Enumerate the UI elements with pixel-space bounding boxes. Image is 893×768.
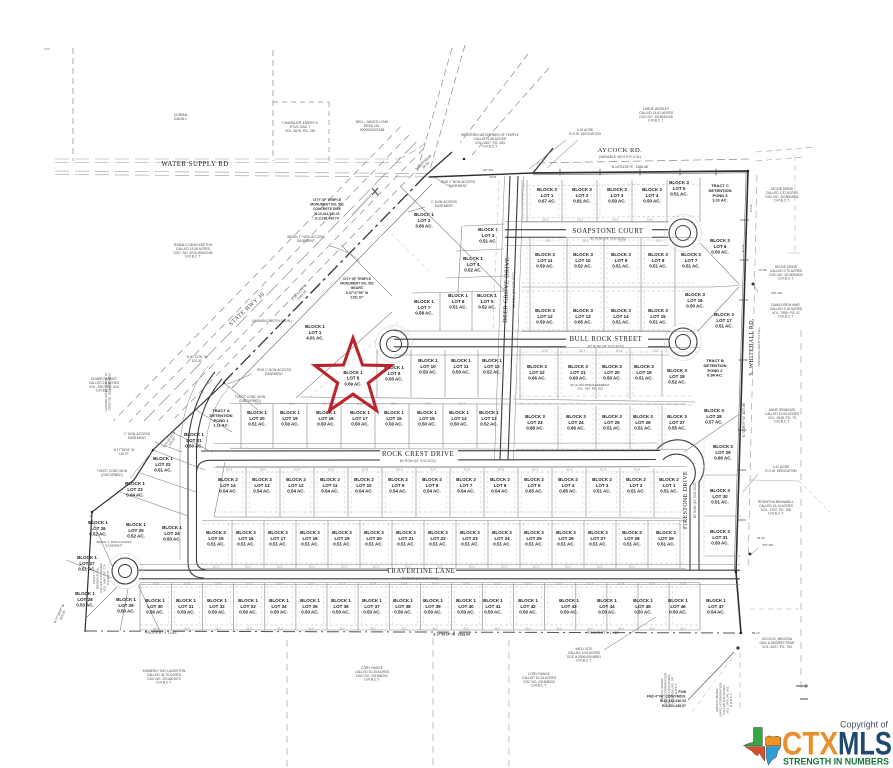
svg-text:1.01 AC.: 1.01 AC. bbox=[712, 198, 728, 203]
svg-text:BLOCK 1: BLOCK 1 bbox=[153, 456, 173, 461]
svg-text:0.50 AC.: 0.50 AC. bbox=[450, 422, 468, 427]
svg-text:0.88 AC.: 0.88 AC. bbox=[526, 426, 544, 431]
svg-text:LOT 20: LOT 20 bbox=[249, 416, 265, 421]
svg-text:BLOCK 3: BLOCK 3 bbox=[602, 414, 622, 419]
svg-text:DAVID L.: DAVID L. bbox=[174, 117, 188, 121]
svg-text:0.54 AC.: 0.54 AC. bbox=[491, 489, 509, 494]
svg-text:0.51 AC.: 0.51 AC. bbox=[248, 422, 266, 427]
svg-text:BLOCK 2: BLOCK 2 bbox=[252, 477, 272, 482]
svg-text:0.90 AC.: 0.90 AC. bbox=[707, 373, 723, 378]
svg-text:110.0: 110.0 bbox=[629, 565, 636, 569]
svg-text:0.50 AC.: 0.50 AC. bbox=[385, 377, 403, 382]
svg-text:LOT 12: LOT 12 bbox=[288, 483, 304, 488]
svg-text:LOT 5: LOT 5 bbox=[481, 299, 494, 304]
svg-text:0.50 AC.: 0.50 AC. bbox=[484, 610, 502, 615]
svg-text:LOT 5: LOT 5 bbox=[528, 483, 541, 488]
svg-text:BLOCK 2: BLOCK 2 bbox=[206, 530, 226, 535]
svg-text:LOT 14: LOT 14 bbox=[220, 483, 236, 488]
svg-text:BLOCK 2: BLOCK 2 bbox=[588, 530, 608, 535]
svg-text:0.51 AC.: 0.51 AC. bbox=[623, 542, 641, 547]
svg-text:0.54 AC.: 0.54 AC. bbox=[423, 489, 441, 494]
svg-text:BEARS: BEARS bbox=[351, 286, 364, 290]
svg-text:115.0: 115.0 bbox=[289, 402, 296, 406]
svg-text:BLOCK 2: BLOCK 2 bbox=[490, 477, 510, 482]
svg-text:0.53 AC.: 0.53 AC. bbox=[76, 603, 94, 608]
svg-text:BLOCK 1: BLOCK 1 bbox=[300, 598, 320, 603]
svg-text:60' ROW (24" EOC-EOC): 60' ROW (24" EOC-EOC) bbox=[402, 577, 438, 581]
svg-text:130.1: 130.1 bbox=[656, 239, 663, 243]
svg-text:BLOCK 1: BLOCK 1 bbox=[280, 410, 300, 415]
svg-text:LOT 11: LOT 11 bbox=[453, 364, 469, 369]
svg-text:130.1: 130.1 bbox=[619, 239, 626, 243]
svg-text:0.65 AC.: 0.65 AC. bbox=[525, 489, 543, 494]
svg-text:0.69 AC.: 0.69 AC. bbox=[344, 381, 361, 386]
svg-text:125.0: 125.0 bbox=[542, 218, 549, 222]
svg-text:(VARIABLE WIDTH R.O.W.): (VARIABLE WIDTH R.O.W.) bbox=[252, 319, 292, 323]
svg-text:0.50 AC.: 0.50 AC. bbox=[239, 610, 257, 615]
svg-text:D.R.B.C.T.: D.R.B.C.T. bbox=[106, 571, 110, 585]
svg-text:0.51 AC.: 0.51 AC. bbox=[603, 426, 621, 431]
svg-text:0.51 AC.: 0.51 AC. bbox=[660, 489, 678, 494]
svg-text:110.0: 110.0 bbox=[533, 565, 540, 569]
svg-text:LOT 22: LOT 22 bbox=[529, 370, 545, 375]
svg-text:0.65 AC.: 0.65 AC. bbox=[574, 320, 592, 325]
svg-text:BLOCK 2: BLOCK 2 bbox=[626, 477, 646, 482]
svg-text:BLOCK 1: BLOCK 1 bbox=[518, 598, 538, 603]
svg-text:LOT 26: LOT 26 bbox=[558, 536, 574, 541]
svg-text:BLOCK 2: BLOCK 2 bbox=[422, 477, 442, 482]
svg-text:LOT 9: LOT 9 bbox=[388, 371, 401, 376]
svg-text:LOT 19: LOT 19 bbox=[282, 416, 298, 421]
svg-text:LOT 8: LOT 8 bbox=[347, 376, 360, 381]
svg-text:110.0: 110.0 bbox=[501, 565, 508, 569]
svg-text:115.8: 115.8 bbox=[464, 468, 471, 472]
svg-text:115.0: 115.0 bbox=[255, 402, 262, 406]
svg-text:115.8: 115.8 bbox=[339, 582, 346, 586]
svg-text:115.8: 115.8 bbox=[401, 582, 408, 586]
svg-text:110.0: 110.0 bbox=[373, 565, 380, 569]
svg-text:BLOCK 1: BLOCK 1 bbox=[706, 598, 726, 603]
svg-text:BLOCK 1: BLOCK 1 bbox=[414, 299, 434, 304]
svg-text:LOT 7: LOT 7 bbox=[418, 305, 431, 310]
svg-text:0.50 AC.: 0.50 AC. bbox=[419, 370, 437, 375]
svg-text:0.51 AC.: 0.51 AC. bbox=[525, 542, 543, 547]
svg-text:LOT 7: LOT 7 bbox=[460, 483, 473, 488]
svg-text:4.01 AC.: 4.01 AC. bbox=[306, 336, 324, 341]
svg-text:LOT 14: LOT 14 bbox=[451, 416, 467, 421]
svg-text:BLOCK 2: BLOCK 2 bbox=[558, 477, 578, 482]
svg-text:0.65 AC.: 0.65 AC. bbox=[559, 489, 577, 494]
svg-text:BLOCK 3: BLOCK 3 bbox=[704, 408, 724, 413]
svg-text:BLOCK 3: BLOCK 3 bbox=[669, 180, 689, 185]
svg-text:BLOCK 1: BLOCK 1 bbox=[477, 293, 497, 298]
svg-text:115.8: 115.8 bbox=[396, 468, 403, 472]
svg-text:0.50 AC.: 0.50 AC. bbox=[185, 444, 203, 449]
svg-text:BLOCK 3: BLOCK 3 bbox=[710, 529, 730, 534]
svg-text:0.50 AC.: 0.50 AC. bbox=[301, 610, 319, 615]
svg-text:110.0: 110.0 bbox=[469, 565, 476, 569]
svg-text:LOT 20: LOT 20 bbox=[366, 536, 382, 541]
svg-text:BLOCK 1: BLOCK 1 bbox=[343, 370, 363, 375]
svg-text:115.8: 115.8 bbox=[370, 582, 377, 586]
svg-text:(DISTURBED): (DISTURBED) bbox=[101, 473, 122, 477]
svg-text:LOT 1: LOT 1 bbox=[309, 330, 322, 335]
svg-text:0.50 AC.: 0.50 AC. bbox=[332, 610, 350, 615]
svg-text:BLOCK 1: BLOCK 1 bbox=[207, 598, 227, 603]
svg-text:BLOCK 1: BLOCK 1 bbox=[247, 410, 267, 415]
svg-text:STRENGTH IN NUMBERS: STRENGTH IN NUMBERS bbox=[783, 757, 889, 767]
svg-text:BLOCK 1: BLOCK 1 bbox=[478, 227, 498, 232]
svg-text:LOT 32: LOT 32 bbox=[209, 604, 225, 609]
svg-text:0.60 AC.: 0.60 AC. bbox=[569, 376, 587, 381]
svg-text:0.50 AC.: 0.50 AC. bbox=[270, 610, 288, 615]
svg-text:BLOCK 3: BLOCK 3 bbox=[634, 364, 654, 369]
svg-text:BLOCK 3: BLOCK 3 bbox=[566, 414, 586, 419]
svg-text:0.50 AC.: 0.50 AC. bbox=[608, 199, 626, 204]
svg-text:BLOCK 1: BLOCK 1 bbox=[418, 358, 438, 363]
svg-text:55.0: 55.0 bbox=[618, 627, 624, 631]
svg-text:LOT 16: LOT 16 bbox=[386, 416, 402, 421]
svg-text:LOT 2: LOT 2 bbox=[418, 218, 431, 223]
svg-text:BLOCK 3: BLOCK 3 bbox=[710, 238, 730, 243]
svg-text:EASEMENT: EASEMENT bbox=[265, 372, 283, 376]
svg-text:0.54 AC.: 0.54 AC. bbox=[219, 489, 237, 494]
svg-text:115.0: 115.0 bbox=[357, 402, 364, 406]
svg-text:LOT 3: LOT 3 bbox=[596, 483, 609, 488]
svg-text:115.8: 115.8 bbox=[277, 582, 284, 586]
svg-text:BLOCK 1: BLOCK 1 bbox=[145, 598, 165, 603]
svg-text:55.0: 55.0 bbox=[308, 627, 314, 631]
svg-text:S 67°37'55" W: S 67°37'55" W bbox=[346, 291, 369, 295]
svg-text:55.0: 55.0 bbox=[463, 627, 469, 631]
svg-text:LOT 28: LOT 28 bbox=[77, 597, 93, 602]
svg-text:115.8: 115.8 bbox=[587, 582, 594, 586]
svg-text:BLOCK 1: BLOCK 1 bbox=[125, 481, 145, 486]
svg-text:LOT 16: LOT 16 bbox=[687, 298, 703, 303]
svg-text:D.R.B.C.T.: D.R.B.C.T. bbox=[778, 315, 794, 319]
svg-text:BLOCK 3: BLOCK 3 bbox=[667, 414, 687, 419]
svg-text:0.50 AC.: 0.50 AC. bbox=[163, 537, 181, 542]
svg-text:BLOCK 2: BLOCK 2 bbox=[524, 477, 544, 482]
svg-text:BLOCK 1: BLOCK 1 bbox=[456, 598, 476, 603]
svg-text:LOT 25: LOT 25 bbox=[526, 536, 542, 541]
svg-text:LOT 18: LOT 18 bbox=[669, 374, 685, 379]
svg-text:0.52 AC.: 0.52 AC. bbox=[478, 305, 496, 310]
svg-text:0.51 AC.: 0.51 AC. bbox=[207, 542, 225, 547]
svg-text:37.06’: 37.06’ bbox=[759, 268, 768, 272]
svg-text:0.51 AC.: 0.51 AC. bbox=[682, 264, 700, 269]
svg-text:D.R.B.C.T.: D.R.B.C.T. bbox=[774, 420, 790, 424]
svg-text:125.0: 125.0 bbox=[577, 218, 584, 222]
svg-text:LOT 5: LOT 5 bbox=[673, 186, 686, 191]
svg-text:BLOCK 1: BLOCK 1 bbox=[331, 598, 351, 603]
svg-text:LOT 13: LOT 13 bbox=[575, 314, 591, 319]
svg-text:LOT 22: LOT 22 bbox=[155, 462, 171, 467]
svg-text:LOT 30: LOT 30 bbox=[712, 494, 728, 499]
svg-text:125.0: 125.0 bbox=[612, 218, 619, 222]
svg-text:0.51 AC.: 0.51 AC. bbox=[78, 567, 96, 572]
svg-text:D.R.B.C.T.: D.R.B.C.T. bbox=[531, 684, 547, 688]
svg-text:LOT 44: LOT 44 bbox=[599, 604, 615, 609]
svg-text:115.8: 115.8 bbox=[294, 468, 301, 472]
svg-text:PROPERTY LINE: PROPERTY LINE bbox=[145, 631, 178, 635]
svg-text:0.52 AC.: 0.52 AC. bbox=[89, 532, 107, 537]
svg-text:55.0: 55.0 bbox=[184, 627, 190, 631]
svg-text:LOT 19: LOT 19 bbox=[334, 536, 350, 541]
svg-text:55.0: 55.0 bbox=[556, 627, 562, 631]
svg-text:BLOCK 2: BLOCK 2 bbox=[524, 530, 544, 535]
svg-text:110.0: 110.0 bbox=[341, 565, 348, 569]
svg-text:0.51 AC.: 0.51 AC. bbox=[627, 489, 645, 494]
svg-text:BLOCK 3: BLOCK 3 bbox=[572, 187, 592, 192]
svg-text:LOT 46: LOT 46 bbox=[670, 604, 686, 609]
svg-text:LOT 16: LOT 16 bbox=[238, 536, 254, 541]
svg-text:VOL. 6127, PG. 703: VOL. 6127, PG. 703 bbox=[762, 645, 792, 649]
svg-text:LOT 47: LOT 47 bbox=[708, 604, 724, 609]
svg-text:D.R.B.C.T.: D.R.B.C.T. bbox=[185, 255, 201, 259]
svg-text:45.43’: 45.43’ bbox=[757, 536, 766, 540]
svg-text:D.R.B.C.T.: D.R.B.C.T. bbox=[768, 512, 784, 516]
svg-text:0.51 AC.: 0.51 AC. bbox=[493, 542, 511, 547]
svg-text:55.0: 55.0 bbox=[494, 627, 500, 631]
svg-text:LOT 38: LOT 38 bbox=[395, 604, 411, 609]
svg-text:BLOCK 2: BLOCK 2 bbox=[428, 530, 448, 535]
svg-text:0.50 AC.: 0.50 AC. bbox=[208, 610, 226, 615]
svg-text:LOT 40: LOT 40 bbox=[458, 604, 474, 609]
svg-text:POB: POB bbox=[678, 690, 686, 694]
svg-text:0.50 AC.: 0.50 AC. bbox=[711, 250, 729, 255]
svg-text:D.R.B.C.T.: D.R.B.C.T. bbox=[778, 277, 794, 281]
svg-text:LOT 25: LOT 25 bbox=[604, 420, 620, 425]
svg-text:EASEMENT: EASEMENT bbox=[435, 204, 453, 208]
svg-text:0.51 AC.: 0.51 AC. bbox=[333, 542, 351, 547]
svg-text:0.51 AC.: 0.51 AC. bbox=[154, 468, 172, 473]
svg-text:BLOCK 2: BLOCK 2 bbox=[236, 530, 256, 535]
svg-text:D.R.B.C.T.: D.R.B.C.T. bbox=[364, 678, 380, 682]
svg-text:130.1: 130.1 bbox=[582, 239, 589, 243]
svg-text:LOT 11: LOT 11 bbox=[537, 258, 553, 263]
svg-text:LOT 43: LOT 43 bbox=[561, 604, 577, 609]
svg-text:LOT 30: LOT 30 bbox=[147, 604, 163, 609]
svg-text:55.0: 55.0 bbox=[587, 627, 593, 631]
svg-text:D.R.B.C.T.: D.R.B.C.T. bbox=[576, 659, 592, 663]
svg-text:0.50 AC.: 0.50 AC. bbox=[146, 610, 164, 615]
svg-text:55.0: 55.0 bbox=[246, 627, 252, 631]
svg-text:BLOCK 1: BLOCK 1 bbox=[126, 522, 146, 527]
svg-text:110.0: 110.0 bbox=[277, 565, 284, 569]
svg-text:0.50 AC.: 0.50 AC. bbox=[598, 610, 616, 615]
svg-text:BLOCK 3: BLOCK 3 bbox=[710, 488, 730, 493]
svg-text:110.0: 110.0 bbox=[565, 565, 572, 569]
svg-text:0.54 AC.: 0.54 AC. bbox=[253, 489, 271, 494]
svg-text:SOAPSTONE COURT: SOAPSTONE COURT bbox=[573, 228, 644, 235]
svg-text:BLOCK 1: BLOCK 1 bbox=[463, 256, 483, 261]
svg-text:LOT 6: LOT 6 bbox=[714, 244, 727, 249]
svg-text:0.51 AC.: 0.51 AC. bbox=[429, 542, 447, 547]
svg-text:BLOCK 1: BLOCK 1 bbox=[238, 598, 258, 603]
svg-text:LOT 3: LOT 3 bbox=[611, 193, 624, 198]
svg-text:LOT 29: LOT 29 bbox=[118, 603, 134, 608]
svg-text:0.51 AC.: 0.51 AC. bbox=[237, 542, 255, 547]
svg-text:LOT 41: LOT 41 bbox=[485, 604, 501, 609]
svg-text:BLOCK 1: BLOCK 1 bbox=[393, 598, 413, 603]
svg-text:0.50 AC.: 0.50 AC. bbox=[363, 610, 381, 615]
svg-text:115.8: 115.8 bbox=[579, 349, 586, 353]
svg-text:BLOCK 2: BLOCK 2 bbox=[592, 477, 612, 482]
svg-text:115.8: 115.8 bbox=[260, 468, 267, 472]
svg-text:BLOCK 3: BLOCK 3 bbox=[535, 308, 555, 313]
svg-text:BLOCK 1: BLOCK 1 bbox=[162, 525, 182, 530]
svg-text:R.O.W.: R.O.W. bbox=[749, 204, 753, 213]
svg-text:LOT 24: LOT 24 bbox=[494, 536, 510, 541]
svg-text:S 17°58'14" W 2518.64’: S 17°58'14" W 2518.64’ bbox=[433, 633, 470, 637]
svg-text:BLOCK 1: BLOCK 1 bbox=[176, 598, 196, 603]
svg-text:55.0: 55.0 bbox=[277, 627, 283, 631]
svg-text:N 14°24'23" E 1166.46’: N 14°24'23" E 1166.46’ bbox=[612, 165, 649, 169]
svg-text:0.51 AC.: 0.51 AC. bbox=[612, 320, 630, 325]
svg-text:LOT 21: LOT 21 bbox=[398, 536, 414, 541]
svg-text:EASEMENT: EASEMENT bbox=[105, 544, 122, 548]
svg-text:BLOCK 2: BLOCK 2 bbox=[492, 530, 512, 535]
svg-text:0.52 AC.: 0.52 AC. bbox=[127, 534, 145, 539]
svg-text:48.89’: 48.89’ bbox=[489, 175, 497, 179]
svg-text:55.0: 55.0 bbox=[339, 627, 345, 631]
svg-text:0.51 AC.: 0.51 AC. bbox=[397, 542, 415, 547]
svg-text:115.8: 115.8 bbox=[498, 468, 505, 472]
svg-text:BLOCK 1: BLOCK 1 bbox=[88, 520, 108, 525]
svg-text:LOT 27: LOT 27 bbox=[669, 420, 685, 425]
svg-text:R.O.W.: R.O.W. bbox=[741, 244, 745, 253]
svg-text:LOT 2: LOT 2 bbox=[630, 483, 643, 488]
svg-text:PROPERTY LINE: PROPERTY LINE bbox=[587, 631, 620, 635]
svg-text:LOT 11: LOT 11 bbox=[322, 483, 338, 488]
svg-text:0.50 AC.: 0.50 AC. bbox=[418, 422, 436, 427]
svg-text:115.0: 115.0 bbox=[323, 402, 330, 406]
svg-text:LOT 3: LOT 3 bbox=[482, 233, 495, 238]
svg-text:LOT 6: LOT 6 bbox=[494, 483, 507, 488]
svg-text:115.8: 115.8 bbox=[226, 468, 233, 472]
svg-text:0.80 AC.: 0.80 AC. bbox=[714, 456, 732, 461]
svg-text:D.R.B.C.T.: D.R.B.C.T. bbox=[774, 199, 790, 203]
svg-text:LOT 15: LOT 15 bbox=[650, 314, 666, 319]
svg-text:BLOCK 1: BLOCK 1 bbox=[414, 212, 434, 217]
svg-text:AYCOCK RD.: AYCOCK RD. bbox=[598, 147, 643, 154]
svg-text:115.8: 115.8 bbox=[542, 349, 549, 353]
svg-text:LOT 15: LOT 15 bbox=[419, 416, 435, 421]
svg-text:LOT 6: LOT 6 bbox=[452, 299, 465, 304]
svg-text:BLOCK 3: BLOCK 3 bbox=[633, 414, 653, 419]
svg-text:0.51 AC.: 0.51 AC. bbox=[269, 542, 287, 547]
svg-text:BLOCK 1: BLOCK 1 bbox=[384, 410, 404, 415]
svg-text:55.0: 55.0 bbox=[680, 627, 686, 631]
svg-text:LOT 17: LOT 17 bbox=[716, 318, 732, 323]
svg-text:0.66 AC.: 0.66 AC. bbox=[567, 426, 585, 431]
svg-text:0.51 AC.: 0.51 AC. bbox=[589, 542, 607, 547]
svg-text:LOT 24: LOT 24 bbox=[164, 531, 180, 536]
svg-text:0.50 AC.: 0.50 AC. bbox=[317, 422, 335, 427]
svg-text:R.O.W. DEDICATION: R.O.W. DEDICATION bbox=[765, 469, 797, 473]
svg-text:BLOCK 2: BLOCK 2 bbox=[556, 530, 576, 535]
svg-text:2009000022188: 2009000022188 bbox=[360, 128, 385, 132]
svg-text:BLOCK 1: BLOCK 1 bbox=[75, 591, 95, 596]
svg-text:BLOCK 1: BLOCK 1 bbox=[559, 598, 579, 603]
svg-text:BULL ROCK STREET: BULL ROCK STREET bbox=[570, 336, 643, 343]
svg-text:LOT 42: LOT 42 bbox=[520, 604, 536, 609]
svg-text:0.50 AC.: 0.50 AC. bbox=[634, 610, 652, 615]
svg-text:BLOCK 2: BLOCK 2 bbox=[364, 530, 384, 535]
svg-text:0.51 AC.: 0.51 AC. bbox=[612, 264, 630, 269]
svg-text:BLOCK 1: BLOCK 1 bbox=[423, 598, 443, 603]
svg-text:DEED NO. 2006000029098: DEED NO. 2006000029098 bbox=[108, 373, 112, 410]
svg-text:115.0: 115.0 bbox=[459, 402, 466, 406]
svg-text:0.67 AC.: 0.67 AC. bbox=[538, 199, 556, 204]
svg-text:BLOCK 1: BLOCK 1 bbox=[449, 410, 469, 415]
svg-text:0.51 AC.: 0.51 AC. bbox=[593, 489, 611, 494]
svg-text:BLOCK 1: BLOCK 1 bbox=[269, 598, 289, 603]
svg-text:LOT 28: LOT 28 bbox=[624, 536, 640, 541]
svg-text:LOT 2: LOT 2 bbox=[576, 193, 589, 198]
svg-text:LOT 18: LOT 18 bbox=[318, 416, 334, 421]
svg-text:60' ROW (24" EOC-EOC): 60' ROW (24" EOC-EOC) bbox=[512, 272, 516, 308]
svg-text:BLOCK 2: BLOCK 2 bbox=[354, 477, 374, 482]
svg-text:LOT 4: LOT 4 bbox=[467, 262, 480, 267]
svg-text:BLOCK 1: BLOCK 1 bbox=[116, 597, 136, 602]
svg-text:WATER SUPPLY RD: WATER SUPPLY RD bbox=[161, 161, 228, 168]
svg-text:BLOCK 3: BLOCK 3 bbox=[573, 308, 593, 313]
svg-text:115.8: 115.8 bbox=[246, 582, 253, 586]
svg-text:0.51 AC.: 0.51 AC. bbox=[715, 324, 733, 329]
svg-text:0.50 AC.: 0.50 AC. bbox=[394, 610, 412, 615]
svg-text:EASEMENT: EASEMENT bbox=[128, 436, 146, 440]
svg-text:BLOCK 3: BLOCK 3 bbox=[667, 368, 687, 373]
svg-text:LOT 4: LOT 4 bbox=[562, 483, 575, 488]
svg-text:0.51 AC.: 0.51 AC. bbox=[635, 376, 653, 381]
svg-text:110.0: 110.0 bbox=[245, 565, 252, 569]
svg-text:S. WHITEHALL RD.: S. WHITEHALL RD. bbox=[749, 318, 755, 375]
svg-text:LOT 17: LOT 17 bbox=[352, 416, 368, 421]
svg-text:N:10,414,511.43: N:10,414,511.43 bbox=[314, 212, 339, 216]
svg-text:LOT 34: LOT 34 bbox=[271, 604, 287, 609]
svg-text:LOT 15: LOT 15 bbox=[208, 536, 224, 541]
svg-text:LOT 37: LOT 37 bbox=[364, 604, 380, 609]
svg-text:LOT 9: LOT 9 bbox=[392, 483, 405, 488]
svg-text:115.8: 115.8 bbox=[618, 582, 625, 586]
svg-text:LOT 26: LOT 26 bbox=[90, 526, 106, 531]
svg-text:55.0: 55.0 bbox=[432, 627, 438, 631]
svg-text:BLOCK 1: BLOCK 1 bbox=[316, 410, 336, 415]
svg-text:55.0: 55.0 bbox=[153, 627, 159, 631]
svg-text:115.8: 115.8 bbox=[184, 582, 191, 586]
svg-text:LOT 12: LOT 12 bbox=[537, 314, 553, 319]
svg-text:LOT 27: LOT 27 bbox=[590, 536, 606, 541]
svg-text:LOT 12: LOT 12 bbox=[484, 364, 500, 369]
svg-text:BLOCK 1: BLOCK 1 bbox=[184, 432, 204, 437]
svg-text:115.8: 115.8 bbox=[362, 468, 369, 472]
svg-text:VOL. 394, PG. 322: VOL. 394, PG. 322 bbox=[577, 387, 603, 391]
svg-text:LOT 1: LOT 1 bbox=[663, 483, 676, 488]
svg-text:110.0: 110.0 bbox=[309, 565, 316, 569]
svg-text:3.66 AC.: 3.66 AC. bbox=[415, 224, 433, 229]
svg-text:LOT 29: LOT 29 bbox=[658, 536, 674, 541]
svg-text:55.0: 55.0 bbox=[215, 627, 221, 631]
svg-text:ROCK CREST DRIVE: ROCK CREST DRIVE bbox=[382, 451, 454, 458]
svg-text:BLOCK 3: BLOCK 3 bbox=[714, 312, 734, 317]
svg-text:0.51 AC.: 0.51 AC. bbox=[657, 542, 675, 547]
svg-text:BLOCK 2: BLOCK 2 bbox=[622, 530, 642, 535]
svg-text:0.50 AC.: 0.50 AC. bbox=[452, 370, 470, 375]
svg-text:115.8: 115.8 bbox=[600, 468, 607, 472]
svg-text:0.50 AC.: 0.50 AC. bbox=[686, 304, 704, 309]
